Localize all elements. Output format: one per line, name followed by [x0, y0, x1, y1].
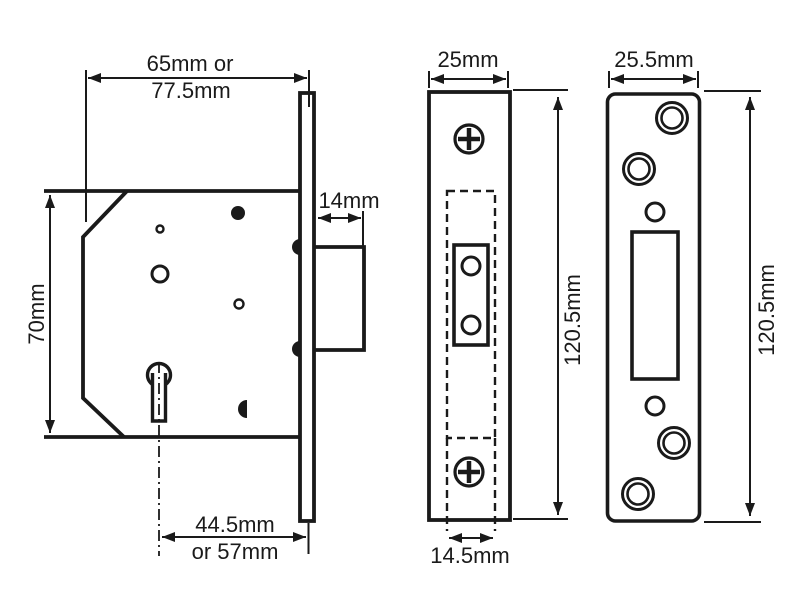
backset-label-line2: or 57mm — [192, 539, 279, 564]
dimension-faceplate-height: 120.5mm — [513, 90, 585, 519]
pin-hole-top — [646, 203, 664, 221]
screw-bottom — [455, 458, 483, 486]
countersunk-hole-1 — [657, 103, 688, 134]
faceplate-width-label: 25mm — [437, 47, 498, 72]
bolt-throw-label: 14mm — [318, 188, 379, 213]
half-moon-hole — [238, 400, 247, 418]
faceplate-front-view: 25mm 120.5mm 14.5mm — [429, 47, 585, 568]
screw-top — [455, 125, 483, 153]
strike-height-label: 120.5mm — [754, 264, 779, 356]
small-pin-hole — [157, 226, 164, 233]
lock-case-side-view: 65mm or 77.5mm 70mm 14mm 44.5mm or 57mm — [24, 51, 380, 564]
dimension-strike-height: 120.5mm — [704, 91, 779, 522]
fixing-hole-filled — [231, 206, 245, 220]
countersunk-hole-4 — [623, 479, 654, 510]
bolt-hole-bottom — [462, 316, 480, 334]
case-chamfered-left-edge — [83, 191, 127, 437]
faceplate-edge — [300, 93, 314, 521]
deadbolt-side — [314, 247, 364, 350]
countersunk-hole-2 — [624, 154, 655, 185]
bolt-cutout — [632, 232, 678, 379]
strike-plate-view: 25.5mm 120.5mm — [608, 47, 780, 522]
pin-hole — [235, 300, 244, 309]
dimension-faceplate-width: 25mm — [429, 47, 508, 88]
mortice-lock-dimension-diagram: 65mm or 77.5mm 70mm 14mm 44.5mm or 57mm — [0, 0, 800, 600]
faceplate-height-label: 120.5mm — [560, 274, 585, 366]
case-thickness-label: 14.5mm — [430, 543, 509, 568]
bolt-hole-top — [462, 257, 480, 275]
dimension-strike-width: 25.5mm — [609, 47, 698, 88]
dimension-bolt-throw: 14mm — [318, 188, 380, 246]
countersunk-hole-3 — [659, 428, 690, 459]
dimension-case-thickness: 14.5mm — [430, 538, 509, 568]
backset-label-line1: 44.5mm — [195, 512, 274, 537]
case-width-label-line1: 65mm or — [147, 51, 234, 76]
rivet-pin-bottom — [292, 341, 300, 357]
dimension-backset: 44.5mm or 57mm — [162, 512, 309, 564]
rivet-pin-top — [292, 239, 300, 255]
case-width-label-line2: 77.5mm — [151, 78, 230, 103]
dimension-case-height: 70mm — [24, 195, 50, 433]
strike-width-label: 25.5mm — [614, 47, 693, 72]
technical-drawing-page: 65mm or 77.5mm 70mm 14mm 44.5mm or 57mm — [0, 0, 800, 600]
pin-hole-bottom — [646, 397, 664, 415]
fixing-hole — [152, 266, 168, 282]
case-height-label: 70mm — [24, 283, 49, 344]
